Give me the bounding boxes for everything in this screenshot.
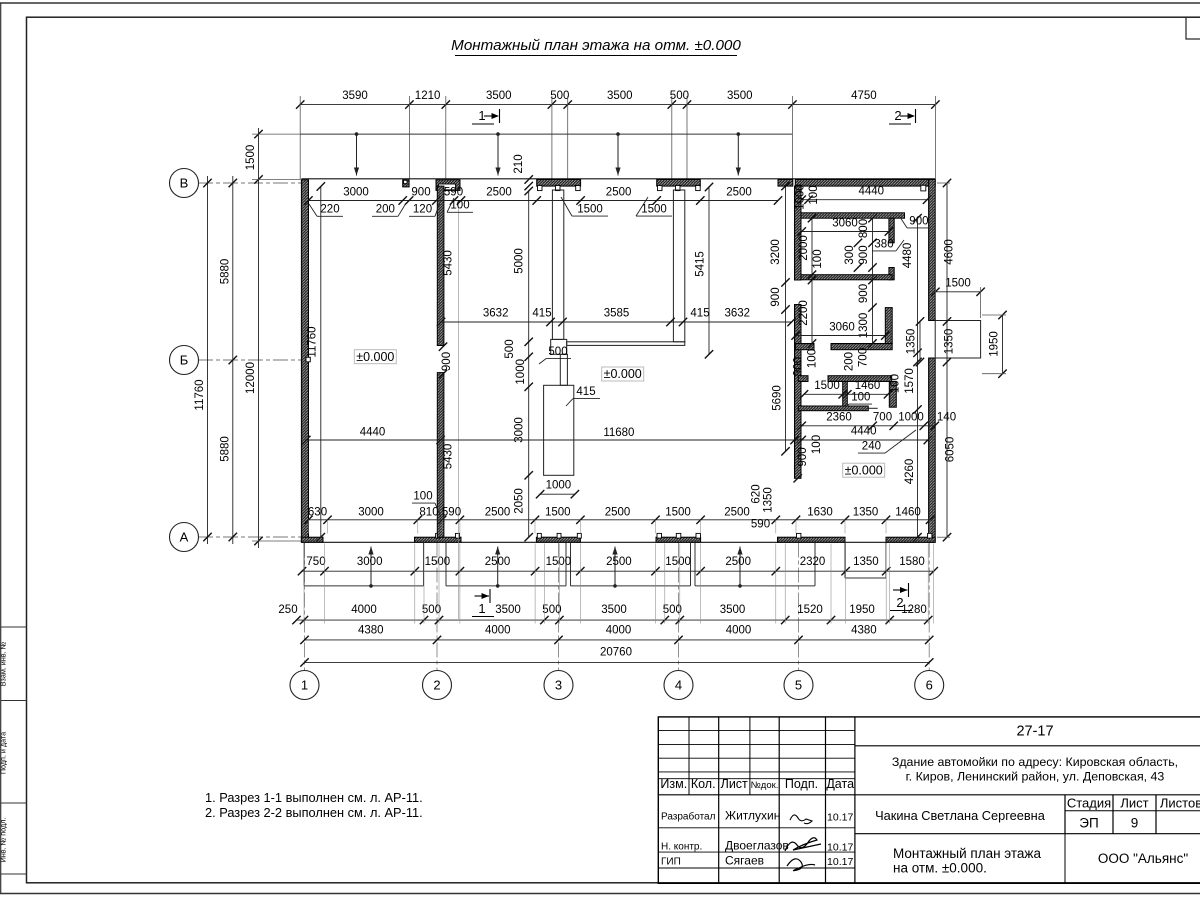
- svg-text:810: 810: [419, 507, 438, 519]
- svg-text:100: 100: [811, 435, 823, 454]
- svg-text:4000: 4000: [726, 625, 752, 637]
- svg-text:2500: 2500: [485, 507, 511, 519]
- svg-text:5000: 5000: [513, 248, 525, 274]
- svg-text:10.17: 10.17: [827, 842, 853, 854]
- svg-text:Двоеглазов: Двоеглазов: [725, 839, 789, 853]
- svg-text:500: 500: [422, 604, 441, 616]
- svg-text:4440: 4440: [859, 186, 885, 198]
- svg-text:3632: 3632: [725, 308, 751, 320]
- svg-text:5880: 5880: [220, 259, 232, 285]
- svg-text:1520: 1520: [797, 604, 823, 616]
- svg-text:1000: 1000: [794, 184, 806, 210]
- svg-text:5690: 5690: [772, 385, 784, 411]
- svg-text:Инв. № подл.: Инв. № подл.: [0, 818, 8, 863]
- svg-text:590: 590: [751, 519, 770, 531]
- svg-text:620: 620: [751, 484, 763, 503]
- svg-text:2360: 2360: [826, 412, 852, 424]
- svg-text:1580: 1580: [899, 556, 925, 568]
- svg-text:27-17: 27-17: [1016, 724, 1053, 740]
- svg-text:6050: 6050: [944, 437, 956, 463]
- svg-text:Монтажный план этажа на отм. ±: Монтажный план этажа на отм. ±0.000: [451, 37, 741, 54]
- svg-text:700: 700: [858, 348, 870, 367]
- svg-text:500: 500: [504, 339, 516, 358]
- svg-text:3060: 3060: [832, 218, 858, 230]
- svg-text:1500: 1500: [814, 380, 840, 392]
- svg-text:2: 2: [433, 678, 440, 693]
- svg-text:700: 700: [873, 412, 892, 424]
- svg-text:750: 750: [306, 556, 325, 568]
- svg-text:3500: 3500: [727, 90, 753, 102]
- svg-text:590: 590: [442, 507, 461, 519]
- svg-text:4380: 4380: [358, 625, 384, 637]
- svg-text:г. Киров, Ленинский район, ул.: г. Киров, Ленинский район, ул. Деповская…: [906, 770, 1165, 784]
- svg-text:5430: 5430: [443, 250, 455, 276]
- svg-text:ГИП: ГИП: [661, 857, 681, 868]
- svg-text:1500: 1500: [945, 278, 971, 290]
- svg-text:1950: 1950: [989, 331, 1001, 357]
- svg-text:900: 900: [797, 447, 809, 466]
- svg-text:4480: 4480: [902, 243, 914, 269]
- svg-text:3585: 3585: [604, 308, 630, 320]
- svg-text:100: 100: [450, 200, 469, 212]
- svg-text:Взам. инв. №: Взам. инв. №: [0, 641, 8, 686]
- svg-text:590: 590: [444, 186, 463, 198]
- svg-text:220: 220: [320, 204, 339, 216]
- svg-text:200: 200: [376, 204, 395, 216]
- svg-text:1500: 1500: [546, 556, 572, 568]
- svg-text:Листов: Листов: [1160, 796, 1200, 811]
- svg-text:1630: 1630: [807, 507, 833, 519]
- svg-text:1500: 1500: [665, 556, 691, 568]
- svg-text:210: 210: [513, 154, 525, 173]
- svg-text:Житлухин: Житлухин: [725, 809, 780, 823]
- svg-text:1000: 1000: [515, 359, 527, 385]
- svg-text:1350: 1350: [943, 329, 955, 355]
- svg-text:11760: 11760: [194, 379, 206, 410]
- svg-text:Б: Б: [180, 353, 189, 368]
- svg-text:3000: 3000: [358, 507, 384, 519]
- svg-text:3200: 3200: [770, 239, 782, 265]
- svg-text:3000: 3000: [343, 186, 369, 198]
- svg-text:Сягаев: Сягаев: [725, 854, 764, 868]
- svg-text:1: 1: [301, 678, 308, 693]
- svg-text:±0.000: ±0.000: [845, 463, 883, 477]
- svg-text:Разработал: Разработал: [661, 811, 716, 823]
- svg-text:1. Разрез 1-1 выполнен см. л.: 1. Разрез 1-1 выполнен см. л. АР-11.: [205, 790, 423, 805]
- svg-text:2500: 2500: [606, 556, 632, 568]
- svg-text:4260: 4260: [904, 459, 916, 485]
- svg-text:6: 6: [926, 678, 933, 693]
- svg-text:9: 9: [1131, 816, 1139, 831]
- svg-text:250: 250: [278, 604, 297, 616]
- svg-text:2500: 2500: [725, 556, 751, 568]
- svg-text:2500: 2500: [724, 507, 750, 519]
- svg-text:900: 900: [411, 186, 430, 198]
- svg-text:240: 240: [862, 441, 881, 453]
- svg-text:1210: 1210: [415, 90, 441, 102]
- svg-text:1460: 1460: [855, 380, 881, 392]
- svg-text:10.17: 10.17: [827, 812, 853, 824]
- svg-text:Лист: Лист: [1120, 796, 1148, 811]
- svg-text:500: 500: [670, 90, 689, 102]
- svg-text:12000: 12000: [245, 362, 257, 394]
- svg-text:Здание автомойки по адресу: Ки: Здание автомойки по адресу: Кировская об…: [892, 755, 1178, 769]
- svg-text:1000: 1000: [898, 412, 924, 424]
- svg-text:Лист: Лист: [721, 777, 748, 791]
- svg-text:500: 500: [663, 604, 682, 616]
- svg-text:3500: 3500: [495, 604, 521, 616]
- svg-text:2500: 2500: [605, 507, 631, 519]
- svg-text:1500: 1500: [245, 145, 257, 171]
- svg-text:415: 415: [576, 386, 595, 398]
- svg-text:3632: 3632: [483, 308, 509, 320]
- svg-text:140: 140: [937, 412, 956, 424]
- svg-text:4750: 4750: [851, 90, 877, 102]
- svg-text:2500: 2500: [606, 186, 632, 198]
- svg-text:1500: 1500: [545, 507, 571, 519]
- svg-text:100: 100: [890, 374, 902, 393]
- svg-text:Дата: Дата: [826, 777, 854, 791]
- svg-text:2000: 2000: [798, 235, 810, 261]
- svg-text:2500: 2500: [485, 556, 511, 568]
- svg-text:Изм.: Изм.: [660, 777, 687, 791]
- svg-text:1: 1: [478, 601, 485, 616]
- svg-text:5415: 5415: [695, 251, 707, 277]
- svg-text:1350: 1350: [906, 329, 918, 355]
- svg-text:3500: 3500: [720, 604, 746, 616]
- svg-text:4600: 4600: [943, 239, 955, 265]
- svg-text:2320: 2320: [800, 556, 826, 568]
- svg-text:11680: 11680: [603, 427, 634, 439]
- svg-text:1500: 1500: [577, 204, 603, 216]
- svg-text:Стадия: Стадия: [1067, 796, 1111, 811]
- svg-text:ЭП: ЭП: [1079, 816, 1098, 831]
- svg-text:415: 415: [532, 308, 551, 320]
- svg-text:Подп.: Подп.: [785, 777, 818, 791]
- svg-text:1950: 1950: [849, 604, 875, 616]
- svg-text:10.17: 10.17: [827, 856, 853, 868]
- svg-text:Чакина Светлана Сергеевна: Чакина Светлана Сергеевна: [875, 808, 1046, 823]
- svg-text:1350: 1350: [763, 487, 775, 513]
- svg-text:200: 200: [844, 352, 856, 371]
- svg-text:415: 415: [690, 308, 709, 320]
- svg-text:100: 100: [413, 491, 432, 503]
- svg-text:3000: 3000: [357, 556, 383, 568]
- svg-text:4440: 4440: [851, 426, 877, 438]
- svg-text:1300: 1300: [858, 313, 870, 339]
- svg-text:900: 900: [441, 352, 453, 371]
- svg-text:20760: 20760: [600, 647, 632, 659]
- svg-text:3500: 3500: [601, 604, 627, 616]
- svg-text:2500: 2500: [726, 186, 752, 198]
- svg-text:630: 630: [308, 507, 327, 519]
- svg-text:3000: 3000: [513, 417, 525, 443]
- svg-text:Монтажный план этажа: Монтажный план этажа: [893, 846, 1041, 861]
- svg-text:2. Разрез 2-2 выполнен см. л.: 2. Разрез 2-2 выполнен см. л. АР-11.: [205, 805, 423, 820]
- svg-text:500: 500: [550, 90, 569, 102]
- svg-text:2500: 2500: [486, 186, 512, 198]
- svg-text:3500: 3500: [486, 90, 512, 102]
- svg-text:5: 5: [795, 678, 802, 693]
- svg-text:ООО "Альянс": ООО "Альянс": [1098, 851, 1188, 866]
- svg-text:1350: 1350: [853, 507, 879, 519]
- svg-text:900: 900: [793, 357, 805, 376]
- svg-text:3060: 3060: [829, 322, 855, 334]
- svg-text:5880: 5880: [220, 436, 232, 462]
- svg-text:4000: 4000: [606, 625, 632, 637]
- svg-text:1500: 1500: [425, 556, 451, 568]
- svg-text:2: 2: [896, 595, 903, 610]
- svg-text:±0.000: ±0.000: [604, 367, 642, 381]
- svg-text:1570: 1570: [904, 368, 916, 394]
- svg-text:4000: 4000: [485, 625, 511, 637]
- svg-text:120: 120: [413, 204, 432, 216]
- svg-text:Н. контр.: Н. контр.: [661, 842, 702, 853]
- svg-text:380: 380: [874, 238, 893, 250]
- svg-text:100: 100: [807, 349, 819, 368]
- svg-text:В: В: [180, 176, 189, 191]
- svg-text:11760: 11760: [307, 326, 319, 357]
- svg-text:Подп. и дата: Подп. и дата: [0, 732, 8, 774]
- svg-text:1000: 1000: [546, 480, 572, 492]
- svg-text:на отм. ±0.000.: на отм. ±0.000.: [893, 861, 987, 876]
- svg-text:100: 100: [808, 185, 820, 204]
- svg-text:Кол.: Кол.: [691, 777, 716, 791]
- svg-text:1350: 1350: [853, 556, 879, 568]
- svg-text:300: 300: [844, 245, 856, 264]
- svg-text:4: 4: [675, 678, 682, 693]
- svg-text:1500: 1500: [665, 507, 691, 519]
- svg-text:500: 500: [548, 346, 567, 358]
- svg-text:2200: 2200: [798, 300, 810, 326]
- svg-text:4440: 4440: [360, 427, 386, 439]
- svg-text:4000: 4000: [351, 604, 377, 616]
- svg-text:№док.: №док.: [751, 780, 779, 791]
- svg-text:100: 100: [851, 392, 870, 404]
- svg-text:900: 900: [858, 284, 870, 303]
- svg-text:500: 500: [542, 604, 561, 616]
- svg-text:4380: 4380: [851, 625, 877, 637]
- svg-text:2050: 2050: [513, 488, 525, 514]
- svg-text:1500: 1500: [641, 204, 667, 216]
- svg-text:А: А: [180, 530, 189, 545]
- svg-text:100: 100: [812, 249, 824, 268]
- svg-text:5430: 5430: [443, 444, 455, 470]
- svg-text:900: 900: [770, 287, 782, 306]
- svg-text:800: 800: [858, 219, 870, 238]
- svg-text:±0.000: ±0.000: [356, 350, 394, 364]
- svg-text:3500: 3500: [607, 90, 633, 102]
- svg-text:1460: 1460: [895, 507, 921, 519]
- svg-text:3590: 3590: [342, 90, 368, 102]
- svg-text:900: 900: [858, 245, 870, 264]
- svg-text:3: 3: [555, 678, 562, 693]
